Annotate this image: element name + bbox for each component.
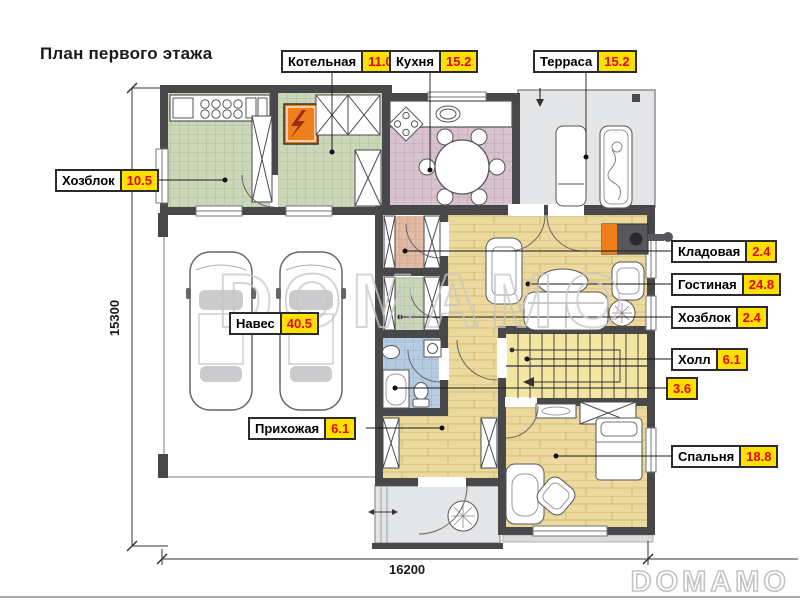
room-area-badge: 2.4 (736, 308, 766, 327)
dining-table (435, 140, 489, 194)
room-name: Хозблок (57, 171, 120, 190)
page-title: План первого этажа (40, 44, 212, 64)
room-name: Терраса (535, 52, 597, 71)
room-name: Кладовая (673, 242, 745, 261)
bed (596, 418, 642, 480)
hall-console (536, 404, 576, 418)
room-area-badge: 40.5 (280, 314, 317, 333)
room-area-badge: 6.1 (716, 350, 746, 369)
room-label-kotelnaya: Котельная 11.0 (281, 50, 400, 73)
room-label-prihozhaya: Прихожая 6.1 (248, 417, 356, 440)
watermark-corner: DOMAMO (631, 566, 790, 598)
room-name: Навес (231, 314, 280, 333)
room-area-badge: 3.6 (668, 379, 696, 398)
sink (383, 346, 400, 359)
room-label-naves: Навес 40.5 (229, 312, 319, 335)
floor-plan-page: 15300 16200 DOMAMO DOMAMO План первого э… (0, 0, 800, 600)
room-label-sanuzel: 3.6 (666, 377, 698, 400)
room-name: Кухня (391, 52, 439, 71)
room-label-kuhnya: Кухня 15.2 (389, 50, 478, 73)
room-area-badge: 15.2 (439, 52, 476, 71)
room-name: Спальня (673, 447, 739, 466)
floor-plan-drawing: 15300 16200 DOMAMO DOMAMO (0, 0, 800, 600)
room-name: Гостиная (673, 275, 742, 294)
room-label-terrasa: Терраса 15.2 (533, 50, 637, 73)
room-name: Котельная (283, 52, 361, 71)
room-name: Прихожая (250, 419, 324, 438)
boiler-icon (284, 104, 318, 144)
room-area-badge: 15.2 (597, 52, 634, 71)
dimension-vertical: 15300 (107, 300, 122, 336)
room-label-spalnya: Спальня 18.8 (671, 445, 778, 468)
toilet (414, 383, 428, 400)
chair (489, 159, 505, 175)
room-area-badge: 24.8 (742, 275, 779, 294)
room-name: Хозблок (673, 308, 736, 327)
room-label-gostinaya: Гостиная 24.8 (671, 273, 781, 296)
room-area-badge: 6.1 (324, 419, 354, 438)
room-area-badge: 2.4 (745, 242, 775, 261)
chair (419, 159, 435, 175)
room-area-badge: 18.8 (739, 447, 776, 466)
room-label-hozblok-big: Хозблок 10.5 (55, 169, 159, 192)
room-label-hozblok-small: Хозблок 2.4 (671, 306, 768, 329)
dimension-horizontal: 16200 (389, 562, 425, 577)
room-name: Холл (673, 350, 716, 369)
room-label-kladovaya: Кладовая 2.4 (671, 240, 777, 263)
room-label-holl: Холл 6.1 (671, 348, 748, 371)
porch-floor (375, 486, 500, 543)
room-area-badge: 10.5 (120, 171, 157, 190)
